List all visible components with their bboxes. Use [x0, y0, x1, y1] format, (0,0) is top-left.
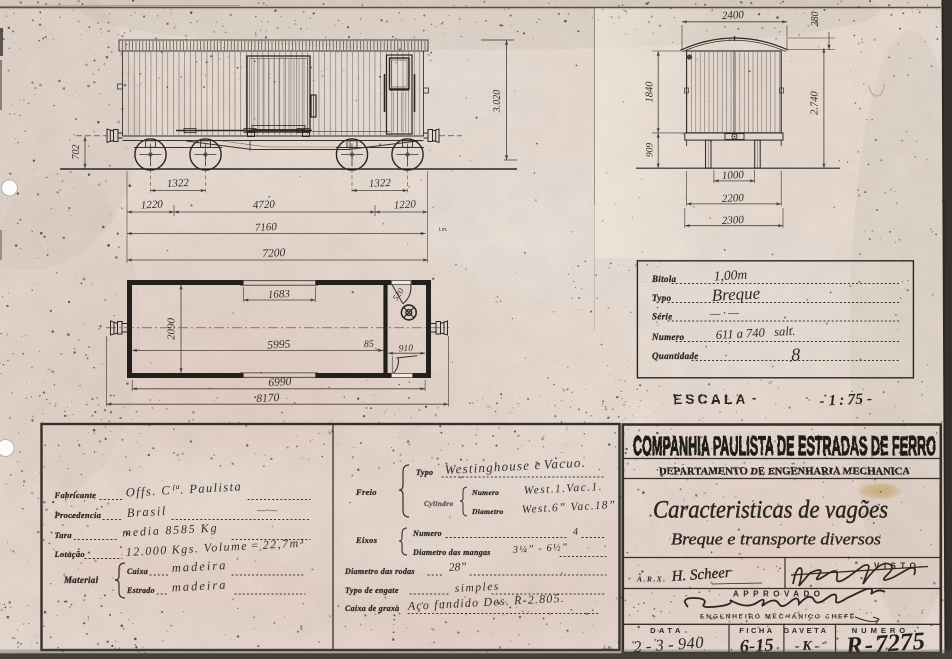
svg-text:Freio: Freio: [355, 487, 377, 497]
svg-text:Typo: Typo: [416, 468, 433, 477]
svg-text:Caracteristicas de vagões: Caracteristicas de vagões: [653, 497, 888, 524]
svg-text:1220: 1220: [394, 198, 417, 211]
svg-text:910: 910: [399, 344, 414, 355]
svg-text:Série: Série: [652, 312, 673, 322]
svg-text:702: 702: [71, 145, 82, 160]
svg-text:2090: 2090: [166, 318, 178, 341]
svg-text:Fabricante: Fabricante: [54, 490, 97, 500]
svg-text:Caixa de graxa: Caixa de graxa: [345, 604, 399, 613]
svg-text:2300: 2300: [722, 214, 745, 227]
svg-text:COMPANHIA PAULISTA DE ESTRADAS: COMPANHIA PAULISTA DE ESTRADAS DE FERRO: [633, 431, 936, 461]
svg-text:FICHA: FICHA: [739, 626, 774, 635]
svg-text:Typo de engate: Typo de engate: [345, 586, 399, 595]
svg-text:5995: 5995: [267, 338, 291, 351]
svg-text:A.R.X.: A.R.X.: [636, 575, 667, 584]
svg-text:simples: simples: [455, 581, 501, 595]
svg-text:1,00m: 1,00m: [713, 267, 747, 284]
svg-text:Eixos: Eixos: [355, 535, 378, 545]
svg-text:Cylindro: Cylindro: [424, 499, 454, 508]
svg-text:280: 280: [810, 12, 821, 27]
svg-text:Estrado: Estrado: [126, 586, 155, 595]
svg-text:Breque e transporte diversos: Breque e transporte diversos: [671, 530, 881, 549]
svg-text:- 1 : 75 -: - 1 : 75 -: [819, 390, 873, 410]
svg-text:Diametro das rodas: Diametro das rodas: [344, 567, 415, 576]
svg-text:8170: 8170: [256, 392, 280, 405]
svg-text:1220: 1220: [141, 198, 164, 211]
svg-text:Lotação: Lotação: [54, 549, 85, 559]
svg-text:2.740: 2.740: [810, 90, 821, 114]
svg-text:ESCALA: ESCALA: [673, 391, 749, 407]
svg-text:2200: 2200: [722, 192, 745, 205]
svg-text:28”: 28”: [449, 561, 468, 574]
svg-text:Breque: Breque: [711, 283, 761, 305]
svg-text:Brasil: Brasil: [126, 504, 167, 520]
svg-text:8: 8: [791, 344, 801, 364]
svg-text:i.m.: i.m.: [439, 227, 448, 233]
svg-text:DEPARTAMENTO DE ENGENHARIA MEC: DEPARTAMENTO DE ENGENHARIA MECHANICA: [659, 467, 910, 478]
svg-text:—·—: —·—: [256, 506, 277, 517]
svg-text:1322: 1322: [369, 177, 392, 190]
svg-text:7160: 7160: [255, 221, 278, 234]
svg-text:Numero: Numero: [471, 488, 499, 497]
svg-text:madeira: madeira: [171, 558, 227, 575]
svg-text:909: 909: [646, 143, 656, 158]
svg-text:Typo: Typo: [652, 293, 672, 303]
svg-text:— · —: — · —: [708, 305, 739, 321]
svg-text:ENGENHEIRO MECHANICO CHEFE: ENGENHEIRO MECHANICO CHEFE: [700, 614, 856, 621]
svg-text:Caixa: Caixa: [127, 567, 148, 576]
svg-text:3.020: 3.020: [492, 90, 503, 114]
svg-text:Diametro: Diametro: [471, 507, 504, 516]
svg-text:Procedencia: Procedencia: [55, 510, 102, 520]
svg-text:1840: 1840: [645, 81, 656, 103]
svg-text:Diametro das mangas: Diametro das mangas: [412, 548, 491, 557]
svg-text:6990: 6990: [268, 376, 292, 389]
svg-text:Quantidade: Quantidade: [652, 351, 699, 361]
svg-text:madeira: madeira: [171, 578, 227, 595]
svg-text:-: -: [752, 390, 756, 405]
svg-text:Numero: Numero: [412, 529, 442, 538]
svg-text:Numero: Numero: [651, 332, 685, 342]
svg-text:85: 85: [364, 339, 375, 351]
svg-text:Tara: Tara: [55, 530, 73, 540]
svg-text:GAVETA: GAVETA: [783, 626, 828, 635]
svg-text:7200: 7200: [262, 247, 286, 260]
svg-text:2400: 2400: [722, 9, 745, 22]
svg-text:1000: 1000: [722, 169, 745, 182]
svg-text:4720: 4720: [253, 198, 276, 211]
svg-text:Material: Material: [63, 575, 99, 585]
svg-text:1683: 1683: [268, 288, 291, 301]
svg-text:1322: 1322: [167, 177, 190, 190]
svg-text:Bitola: Bitola: [651, 274, 677, 284]
